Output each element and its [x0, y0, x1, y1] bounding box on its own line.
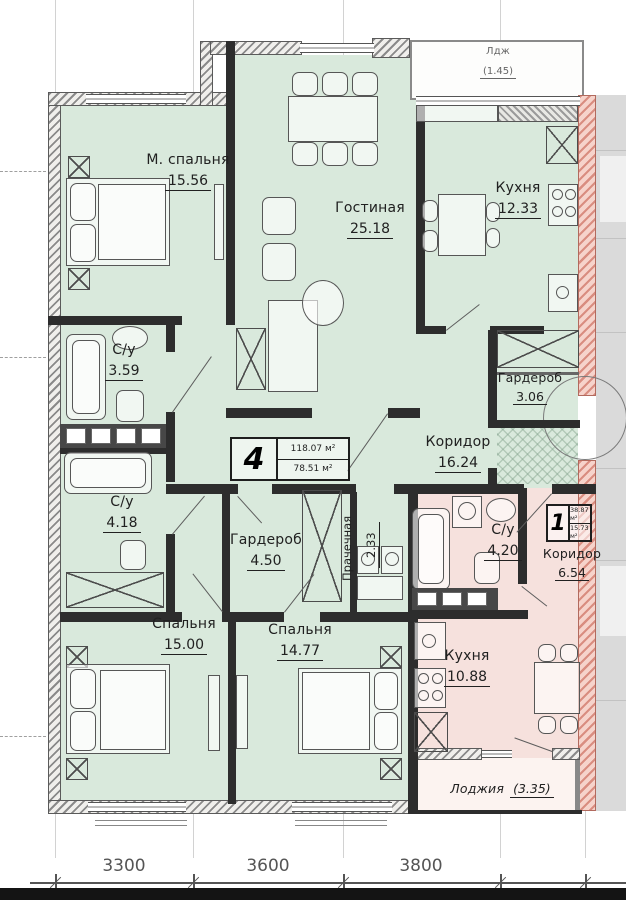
- room-area: 25.18: [347, 221, 393, 240]
- room-area: 4.50: [247, 553, 284, 572]
- loggia-wall-right: [552, 748, 580, 760]
- label-bedroom3: Спальня 14.77: [250, 622, 350, 661]
- apartment-living-area: 15.73 м²: [570, 524, 590, 541]
- divider: [596, 700, 626, 701]
- pillow: [374, 672, 398, 710]
- corner-column: [380, 758, 402, 780]
- apartment1-stamp: 1 38.87 м² 15.73 м²: [546, 504, 592, 542]
- exterior-wall-right-upper: [578, 95, 596, 396]
- room-name: С/у: [473, 522, 533, 540]
- label-corridor-apt4: Коридор 16.24: [412, 434, 504, 473]
- sink-drain: [556, 286, 569, 299]
- exterior-wall-block: [372, 38, 410, 58]
- chair: [352, 142, 378, 166]
- vanity-basin: [66, 428, 86, 444]
- room-name: Спальня: [250, 622, 350, 640]
- room-name: С/у: [95, 342, 153, 360]
- railing: [95, 820, 187, 826]
- divider: [596, 332, 626, 333]
- blanket: [100, 670, 166, 750]
- vanity-basin: [116, 428, 136, 444]
- wall: [320, 612, 408, 622]
- corner-column: [68, 156, 90, 178]
- pillow: [70, 224, 96, 262]
- washer-drum: [458, 502, 476, 520]
- room-area: 16.24: [435, 455, 481, 474]
- kitchen-counter-hatched: [498, 104, 578, 122]
- label-master-bedroom: М. спальня 15.56: [138, 152, 238, 191]
- bath-cabinet: [66, 572, 164, 608]
- divider: [596, 150, 626, 151]
- room-name: Лоджия: [450, 781, 504, 797]
- divider: [596, 238, 626, 239]
- window-bedroom2: [88, 802, 186, 812]
- room-name: Спальня: [134, 616, 234, 634]
- room-name: Кухня: [427, 648, 507, 666]
- bottom-bar: [0, 888, 626, 900]
- window-master-bedroom: [86, 94, 186, 104]
- door-opening: [600, 156, 626, 222]
- kitchen-cabinet: [546, 126, 578, 164]
- chair: [538, 644, 556, 662]
- apartment-number: 1: [548, 506, 570, 540]
- wall: [388, 408, 420, 418]
- toilet: [120, 540, 146, 570]
- wall: [48, 316, 182, 325]
- chair: [352, 72, 378, 96]
- label-bath2: С/у 4.18: [92, 494, 152, 533]
- label-laundry-area: 2.33: [364, 522, 380, 568]
- chair: [538, 716, 556, 734]
- label-laundry-name: Прачечная: [340, 496, 354, 600]
- apartment-total-area: 38.87 м²: [570, 506, 590, 524]
- wall: [418, 610, 528, 619]
- wall: [226, 408, 312, 418]
- room-name: Гостиная: [320, 200, 420, 218]
- chair: [560, 644, 578, 662]
- label-bedroom2: Спальня 15.00: [134, 616, 234, 655]
- chair: [292, 72, 318, 96]
- chair: [292, 142, 318, 166]
- vanity-basin: [141, 428, 161, 444]
- apartment-number: 4: [232, 439, 278, 479]
- label-loggia: Лоджия (3.35): [432, 778, 572, 798]
- kitchen-cabinet: [414, 712, 448, 752]
- room-area: 3.06: [513, 389, 547, 406]
- wall: [166, 412, 175, 482]
- burner: [432, 690, 443, 701]
- railing: [295, 820, 387, 826]
- tv-cabinet: [236, 675, 248, 749]
- bathtub-inner: [70, 458, 146, 488]
- wall: [416, 326, 446, 334]
- label-bath1: С/у 3.59: [95, 342, 153, 381]
- vanity-basin: [417, 592, 437, 606]
- balcony-top-label: Лдж (1.45): [468, 46, 528, 79]
- balcony-name: Лдж: [468, 46, 528, 59]
- chair: [322, 142, 348, 166]
- bathtub-inner: [418, 514, 444, 584]
- wall: [552, 484, 596, 494]
- wall: [166, 322, 175, 352]
- room-area: 10.88: [444, 669, 490, 688]
- pillow: [70, 711, 96, 751]
- chair: [322, 72, 348, 96]
- washer-drum: [385, 552, 399, 566]
- label-kitchen-apt1: Кухня 10.88: [427, 648, 507, 687]
- sink-drain: [422, 634, 436, 648]
- tv-cabinet: [214, 184, 224, 260]
- label-kitchen-apt4: Кухня 12.33: [478, 180, 558, 219]
- cabinet: [236, 328, 266, 390]
- wardrobe: [497, 330, 579, 368]
- wall: [226, 316, 235, 325]
- room-name: М. спальня: [138, 152, 238, 170]
- apartment-total-area: 118.07 м²: [278, 439, 348, 460]
- chair: [560, 716, 578, 734]
- armchair: [262, 197, 296, 235]
- toilet: [116, 390, 144, 422]
- exterior-wall-top-living: [210, 41, 302, 55]
- room-name: Коридор: [528, 546, 616, 562]
- loggia-side-wall: [575, 760, 580, 812]
- burner: [565, 206, 576, 217]
- vanity-basin: [467, 592, 487, 606]
- dimension-3600: 3600: [238, 856, 298, 876]
- sink: [486, 498, 516, 522]
- loggia-railing: [414, 810, 582, 814]
- room-area: 4.18: [103, 515, 140, 534]
- kitchen-counter: [416, 104, 498, 122]
- loggia-window: [482, 750, 512, 758]
- dining-table: [288, 96, 378, 142]
- corner-column: [68, 268, 90, 290]
- floor-plan: Лдж (1.45): [0, 0, 626, 900]
- burner: [418, 690, 429, 701]
- corner-column: [66, 758, 88, 780]
- window-bedroom3: [292, 802, 392, 812]
- room-area: 15.00: [161, 637, 207, 656]
- label-bath-apt1: С/у 4.20: [473, 522, 533, 561]
- window-living: [300, 43, 374, 53]
- label-wardrobe1: Гардероб 3.06: [486, 370, 574, 406]
- room-name: Кухня: [478, 180, 558, 198]
- window-kitchen-apt4: [416, 96, 580, 106]
- laundry-counter: [357, 576, 403, 600]
- chair: [486, 228, 500, 248]
- axis-line-horizontal: [0, 357, 46, 358]
- armchair: [262, 243, 296, 281]
- chair: [422, 230, 438, 252]
- tv-cabinet: [208, 675, 220, 751]
- room-name: Гардероб: [486, 370, 574, 386]
- room-area: 3.59: [105, 363, 142, 382]
- room-area: 15.56: [165, 173, 211, 192]
- room-area: 4.20: [484, 543, 521, 562]
- axis-line-horizontal: [0, 736, 46, 737]
- chair: [422, 200, 438, 222]
- pillow: [70, 183, 96, 221]
- pillow: [374, 712, 398, 750]
- axis-line-horizontal: [0, 171, 46, 172]
- room-name: Коридор: [412, 434, 504, 452]
- wall: [488, 420, 580, 428]
- room-area: 12.33: [495, 201, 541, 220]
- blanket: [302, 672, 370, 750]
- dimension-line: [30, 882, 626, 884]
- room-name: С/у: [92, 494, 152, 512]
- coffee-table: [302, 280, 344, 326]
- balcony-area: (1.45): [480, 66, 516, 80]
- axis-line-vertical: [585, 806, 586, 858]
- wall: [166, 534, 175, 612]
- apartment4-stamp: 4 118.07 м² 78.51 м²: [230, 437, 350, 481]
- dimension-3800: 3800: [391, 856, 451, 876]
- corner-column: [380, 646, 402, 668]
- apartment-living-area: 78.51 м²: [278, 460, 348, 480]
- vanity-basin: [91, 428, 111, 444]
- label-corridor-apt1: Коридор 6.54: [528, 546, 616, 582]
- divider: [596, 468, 626, 469]
- room-area: (3.35): [510, 781, 554, 798]
- label-wardrobe2: Гардероб 4.50: [220, 532, 312, 571]
- kitchen-table: [534, 662, 580, 714]
- vanity-basin: [442, 592, 462, 606]
- dimension-3300: 3300: [94, 856, 154, 876]
- room-area: 14.77: [277, 643, 323, 662]
- label-living: Гостиная 25.18: [320, 200, 420, 239]
- blanket: [98, 184, 166, 260]
- room-area: 6.54: [555, 565, 589, 582]
- burner: [565, 189, 576, 200]
- room-name: Гардероб: [220, 532, 312, 550]
- pillow: [70, 669, 96, 709]
